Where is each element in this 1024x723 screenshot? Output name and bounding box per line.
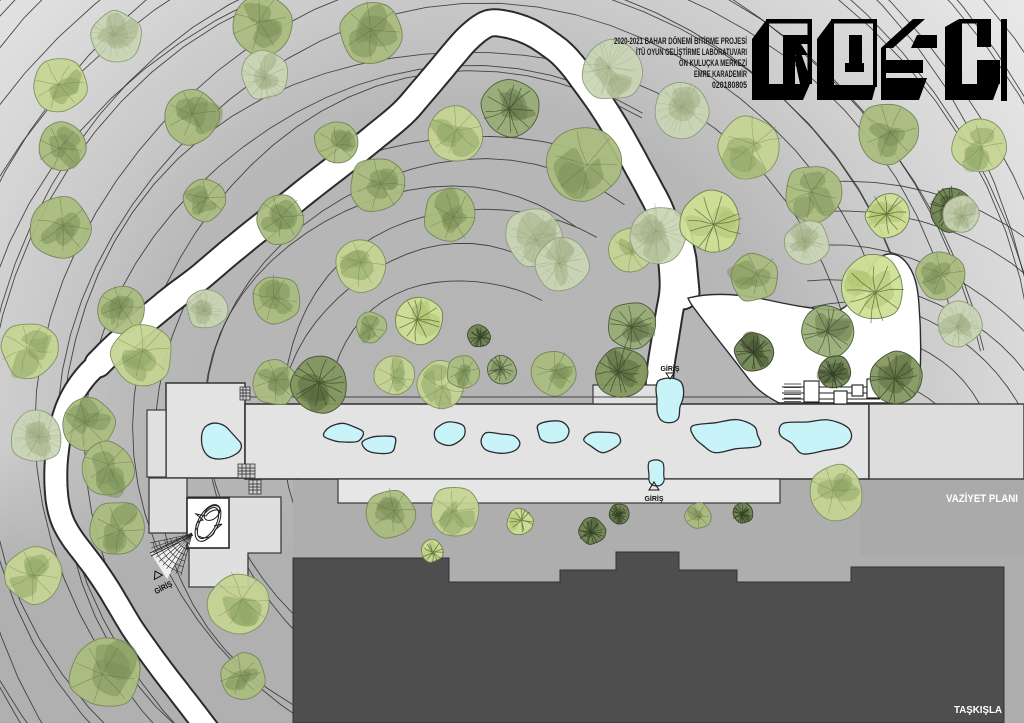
svg-text:VAZİYET PLANI: VAZİYET PLANI — [946, 492, 1018, 505]
svg-text:TAŞKIŞLA: TAŞKIŞLA — [954, 705, 1002, 716]
svg-text:ÖN KULUÇKA MERKEZİ: ÖN KULUÇKA MERKEZİ — [679, 58, 747, 68]
svg-text:GİRİŞ: GİRİŞ — [645, 494, 664, 503]
svg-text:2020-2021 BAHAR DÖNEMİ BİTİRME: 2020-2021 BAHAR DÖNEMİ BİTİRME PROJESİ — [614, 36, 747, 46]
svg-text:EMRE KARADEMİR: EMRE KARADEMİR — [694, 69, 747, 79]
svg-text:020180805: 020180805 — [712, 80, 747, 90]
svg-text:İTÜ OYUN GELİŞTİRME LABORATUVA: İTÜ OYUN GELİŞTİRME LABORATUVARI — [636, 47, 747, 57]
svg-text:GİRİŞ: GİRİŞ — [661, 364, 680, 373]
